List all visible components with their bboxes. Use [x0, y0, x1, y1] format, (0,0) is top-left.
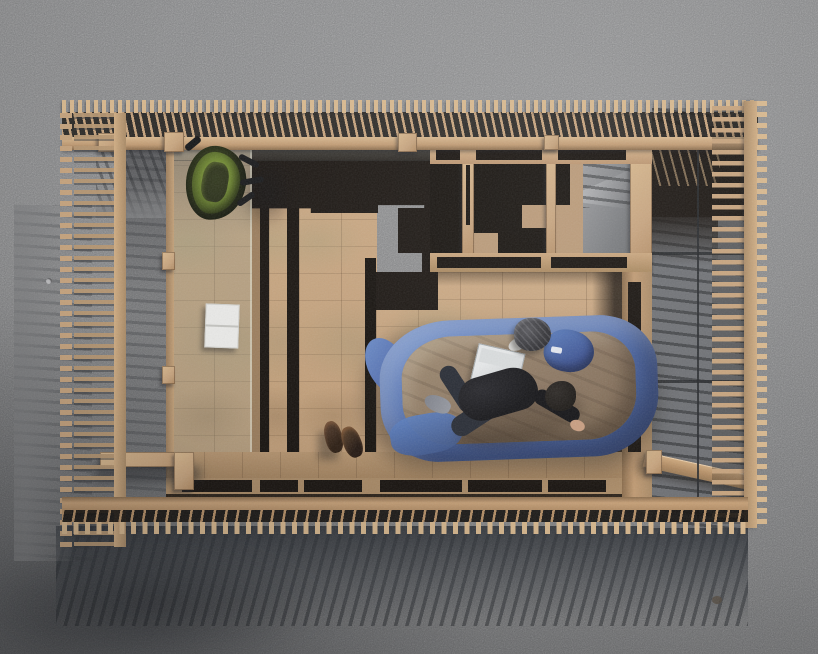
east-deep-shadow-tail	[652, 215, 718, 265]
white-book	[204, 303, 240, 348]
concrete-stain	[712, 596, 722, 604]
book-spine	[205, 324, 239, 327]
wall-slot	[558, 150, 626, 160]
wall-slot	[436, 150, 460, 160]
south-rail	[62, 497, 748, 510]
north-rail-post-3	[398, 133, 417, 152]
wall-slot	[260, 480, 298, 492]
north-rail-post-4	[544, 135, 559, 150]
east-slat-tips	[757, 101, 767, 528]
east-rail	[744, 101, 757, 528]
wall-slot	[551, 257, 627, 268]
wall-slot	[437, 257, 541, 268]
west-slat-tips	[60, 113, 72, 547]
east-rod	[697, 112, 699, 520]
south-wall-slot-row	[166, 478, 622, 494]
aerial-pavilion-photo: Aerial top-down photograph of a slatted …	[0, 0, 818, 654]
north-rail-post-2	[164, 132, 184, 152]
west-slats	[74, 113, 116, 547]
ne-bottom-wall	[430, 253, 652, 272]
wall-slot	[304, 480, 362, 492]
east-slat-stubs	[712, 106, 745, 524]
concrete-pebble	[46, 278, 52, 284]
east-lit-slats-over-void	[650, 150, 720, 186]
stair-shadow-4	[498, 228, 552, 253]
sleeping-room-corner-shadow	[376, 272, 438, 310]
post-slot	[466, 165, 470, 225]
frame-tab-west-2	[162, 366, 175, 384]
south-slat-tips	[62, 522, 748, 534]
wall-slot	[476, 150, 542, 160]
north-slat-tips	[62, 100, 758, 113]
wall-slot	[380, 480, 462, 492]
wall-slot	[468, 480, 542, 492]
wall-slot	[548, 480, 606, 492]
frame-tab-west-1	[162, 252, 175, 270]
sw-bench-stub	[174, 452, 194, 490]
se-step-connector	[646, 450, 662, 474]
backpack-shadow	[234, 154, 301, 233]
person-head-hair	[545, 381, 576, 411]
south-slat-midzone	[62, 510, 748, 522]
west-rail	[114, 113, 126, 547]
west-floor-edge-rail	[166, 147, 174, 463]
